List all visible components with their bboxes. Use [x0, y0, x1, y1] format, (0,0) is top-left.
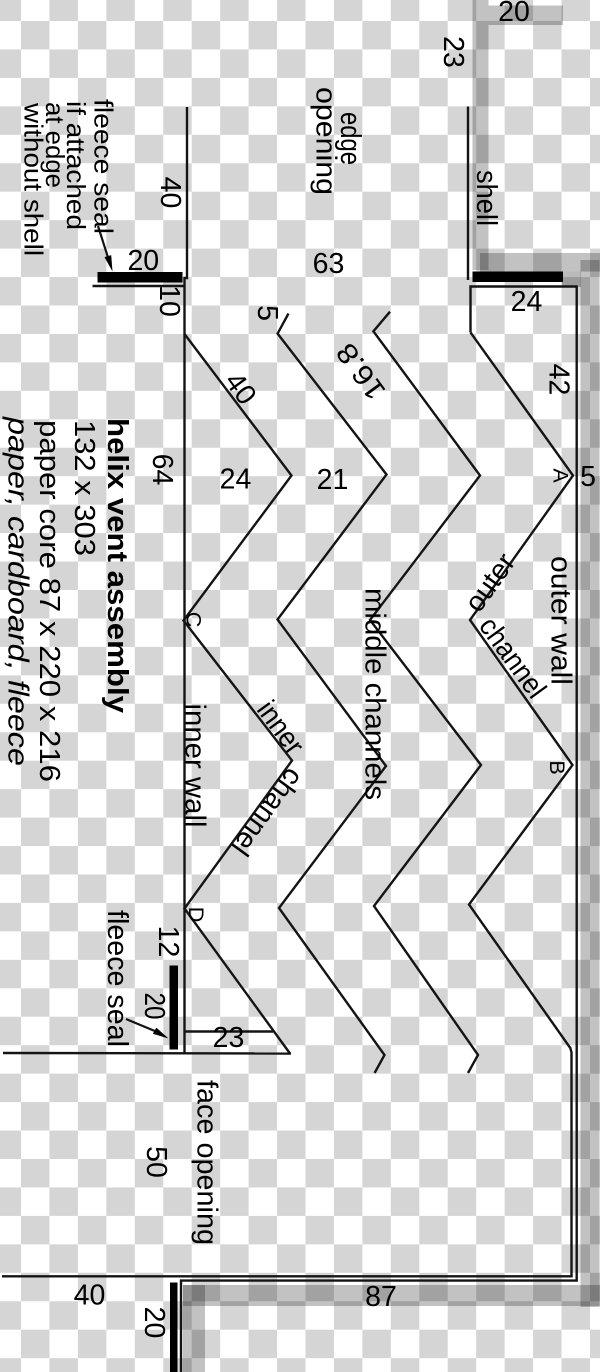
svg-text:24: 24 — [220, 464, 252, 496]
svg-text:20: 20 — [127, 245, 159, 277]
svg-text:paper core 87 x 220 x 216: paper core 87 x 220 x 216 — [33, 420, 65, 782]
svg-text:23: 23 — [213, 1022, 245, 1054]
svg-text:10: 10 — [153, 285, 185, 317]
svg-text:63: 63 — [313, 248, 345, 280]
svg-text:23: 23 — [437, 36, 469, 68]
svg-text:inner wall: inner wall — [179, 704, 211, 828]
svg-text:20: 20 — [138, 1307, 170, 1339]
svg-text:64: 64 — [146, 454, 178, 486]
svg-text:fleece seal: fleece seal — [89, 99, 119, 234]
svg-text:132 x 303: 132 x 303 — [68, 420, 100, 556]
svg-text:paper, cardboard, fleece: paper, cardboard, fleece — [2, 416, 34, 766]
svg-text:20: 20 — [498, 0, 530, 28]
svg-text:helix vent assembly: helix vent assembly — [101, 418, 133, 713]
svg-text:C: C — [182, 612, 206, 628]
svg-text:shell: shell — [470, 170, 502, 226]
svg-text:40: 40 — [154, 177, 186, 209]
svg-text:outer wall: outer wall — [545, 556, 577, 685]
svg-text:without shell: without shell — [19, 102, 49, 256]
svg-text:50: 50 — [140, 1146, 172, 1178]
svg-text:B: B — [545, 760, 569, 774]
svg-text:20: 20 — [138, 993, 170, 1020]
svg-text:middle channels: middle channels — [359, 588, 391, 800]
svg-text:face opening: face opening — [191, 1080, 223, 1245]
svg-text:D: D — [184, 907, 208, 923]
svg-text:87: 87 — [365, 1281, 397, 1313]
svg-text:40: 40 — [74, 1280, 106, 1312]
svg-text:5: 5 — [251, 305, 283, 321]
svg-text:12: 12 — [152, 926, 184, 958]
svg-text:21: 21 — [317, 464, 349, 496]
svg-text:5: 5 — [580, 461, 596, 493]
svg-text:42: 42 — [543, 364, 575, 396]
svg-text:opening: opening — [310, 87, 342, 195]
svg-text:A: A — [549, 468, 573, 483]
svg-text:24: 24 — [511, 286, 543, 318]
svg-text:fleece seal: fleece seal — [101, 910, 133, 1047]
